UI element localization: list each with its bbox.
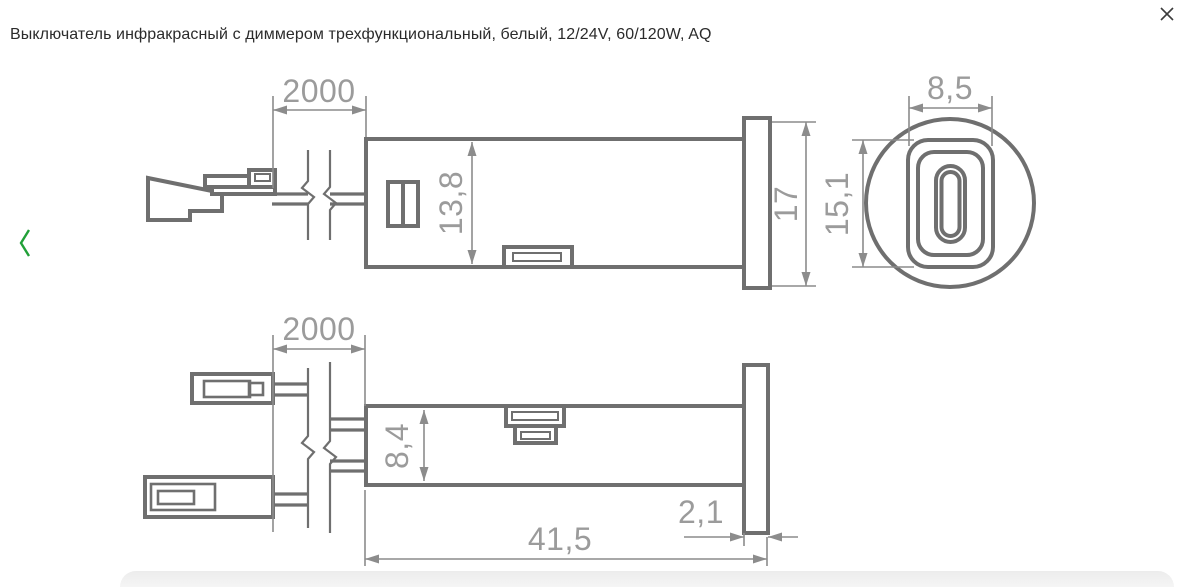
top-view: 2000 8,4 41,5 2,1 [145, 311, 798, 566]
dim-side-body-height: 13,8 [433, 171, 469, 235]
dim-top-total-length: 41,5 [528, 521, 592, 557]
dim-side-bezel-diameter: 17 [768, 186, 804, 223]
technical-drawing: 2000 13,8 17 8,5 [0, 0, 1184, 587]
dim-top-body-width: 8,4 [379, 423, 415, 469]
bottom-panel-edge [120, 571, 1174, 587]
dim-side-cable-length: 2000 [282, 73, 355, 109]
dim-top-bezel-thickness: 2,1 [678, 494, 724, 530]
front-view: 8,5 15,1 [819, 70, 1034, 287]
dim-front-window-height: 15,1 [819, 172, 855, 236]
side-view: 2000 13,8 17 [148, 73, 816, 288]
dim-top-cable-length: 2000 [282, 311, 355, 347]
image-viewer: Выключатель инфракрасный с диммером трех… [0, 0, 1184, 587]
dim-front-window-width: 8,5 [927, 70, 973, 106]
